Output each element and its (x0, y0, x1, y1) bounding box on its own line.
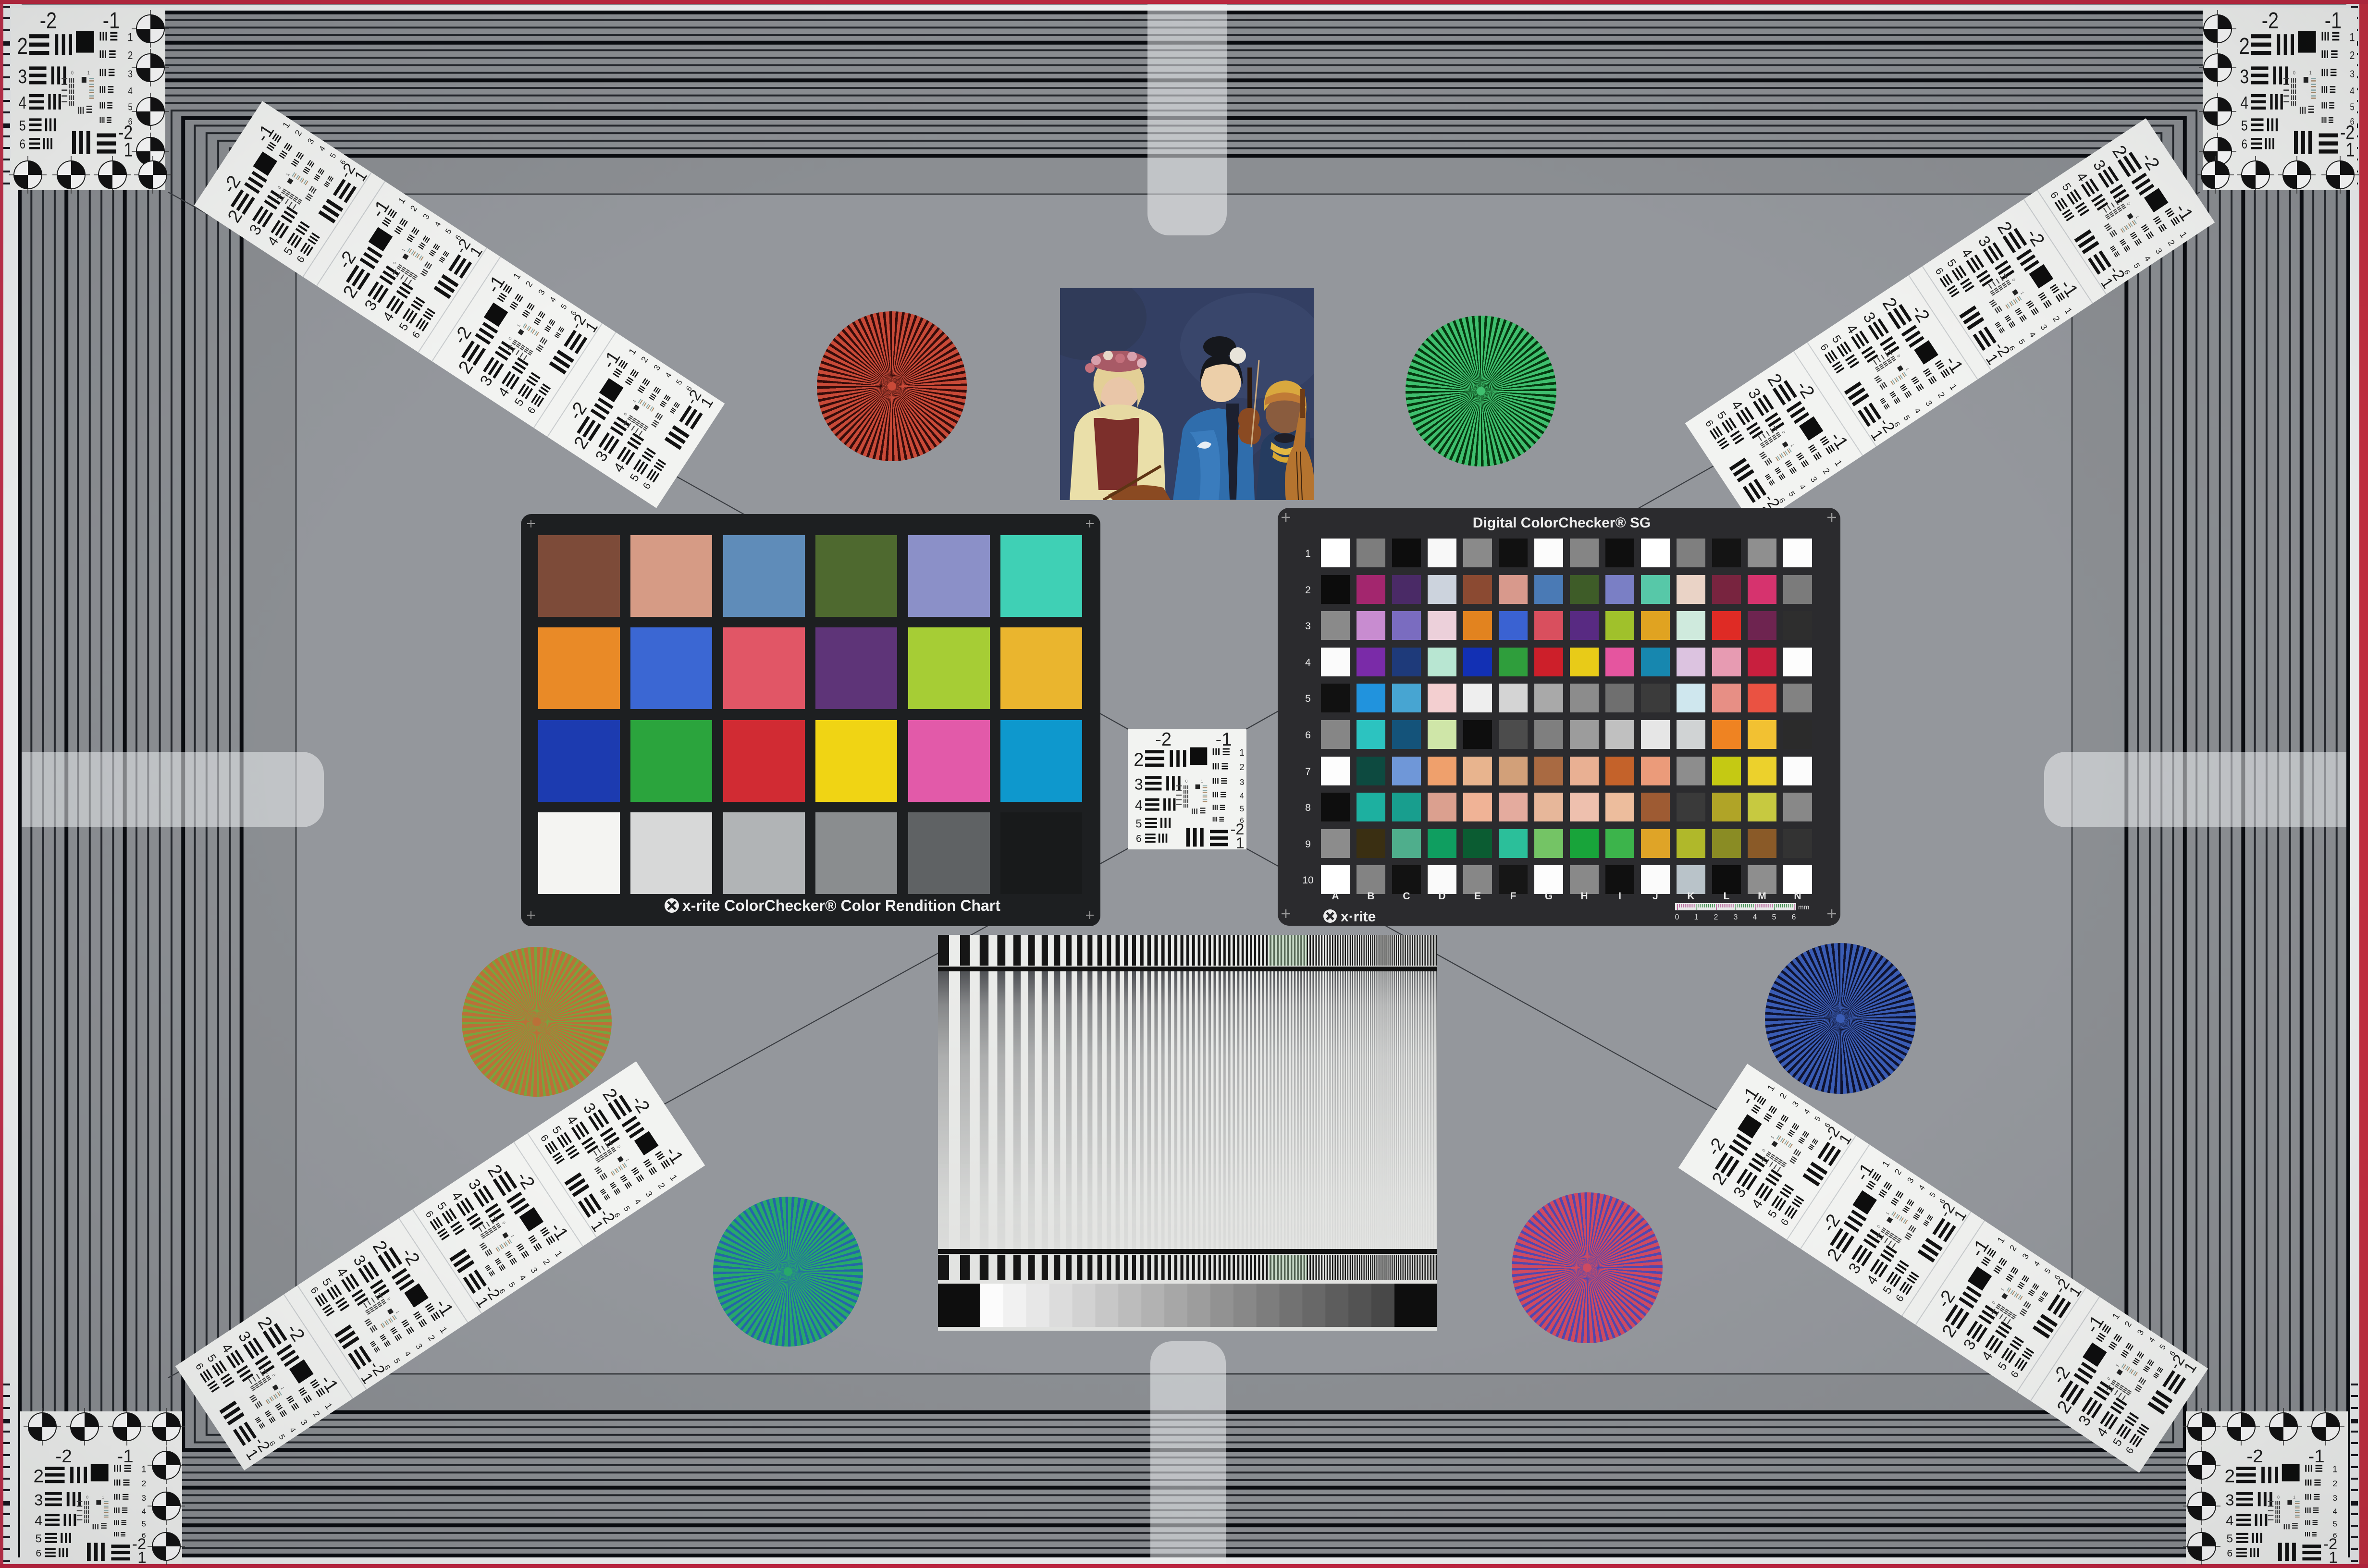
svg-text:8: 8 (1305, 802, 1311, 813)
svg-text:5: 5 (1772, 913, 1776, 921)
svg-text:4: 4 (1305, 657, 1311, 668)
svg-text:10: 10 (1302, 875, 1313, 886)
svg-text:7: 7 (1305, 766, 1311, 777)
svg-text:5: 5 (1305, 693, 1311, 704)
svg-text:1: 1 (1305, 548, 1311, 559)
svg-text:H: H (1580, 891, 1588, 902)
svg-text:A: A (1332, 891, 1339, 902)
svg-text:x·rite: x·rite (1341, 909, 1376, 925)
svg-text:F: F (1510, 891, 1517, 902)
svg-text:6: 6 (1305, 730, 1311, 741)
svg-text:K: K (1687, 891, 1694, 902)
svg-text:9: 9 (1305, 839, 1311, 850)
svg-text:I: I (1618, 891, 1621, 902)
svg-text:Digital ColorChecker® SG: Digital ColorChecker® SG (1473, 515, 1651, 531)
svg-text:J: J (1653, 891, 1658, 902)
svg-text:C: C (1403, 891, 1410, 902)
svg-text:mm: mm (1798, 903, 1809, 911)
svg-text:E: E (1474, 891, 1481, 902)
svg-text:M: M (1758, 891, 1766, 902)
svg-text:G: G (1545, 891, 1553, 902)
svg-text:1: 1 (1694, 913, 1699, 921)
svg-text:N: N (1794, 891, 1801, 902)
svg-text:D: D (1438, 891, 1445, 902)
svg-text:0: 0 (1675, 913, 1679, 921)
svg-text:x-rite ColorChecker® Color R: x-rite ColorChecker® Color Rendition Cha… (682, 897, 1000, 914)
svg-text:3: 3 (1305, 621, 1311, 632)
svg-text:2: 2 (1305, 585, 1311, 596)
svg-text:4: 4 (1753, 913, 1757, 921)
svg-text:6: 6 (1792, 913, 1796, 921)
svg-text:L: L (1724, 891, 1730, 902)
svg-text:B: B (1367, 891, 1374, 902)
svg-text:3: 3 (1734, 913, 1738, 921)
svg-text:2: 2 (1714, 913, 1718, 921)
